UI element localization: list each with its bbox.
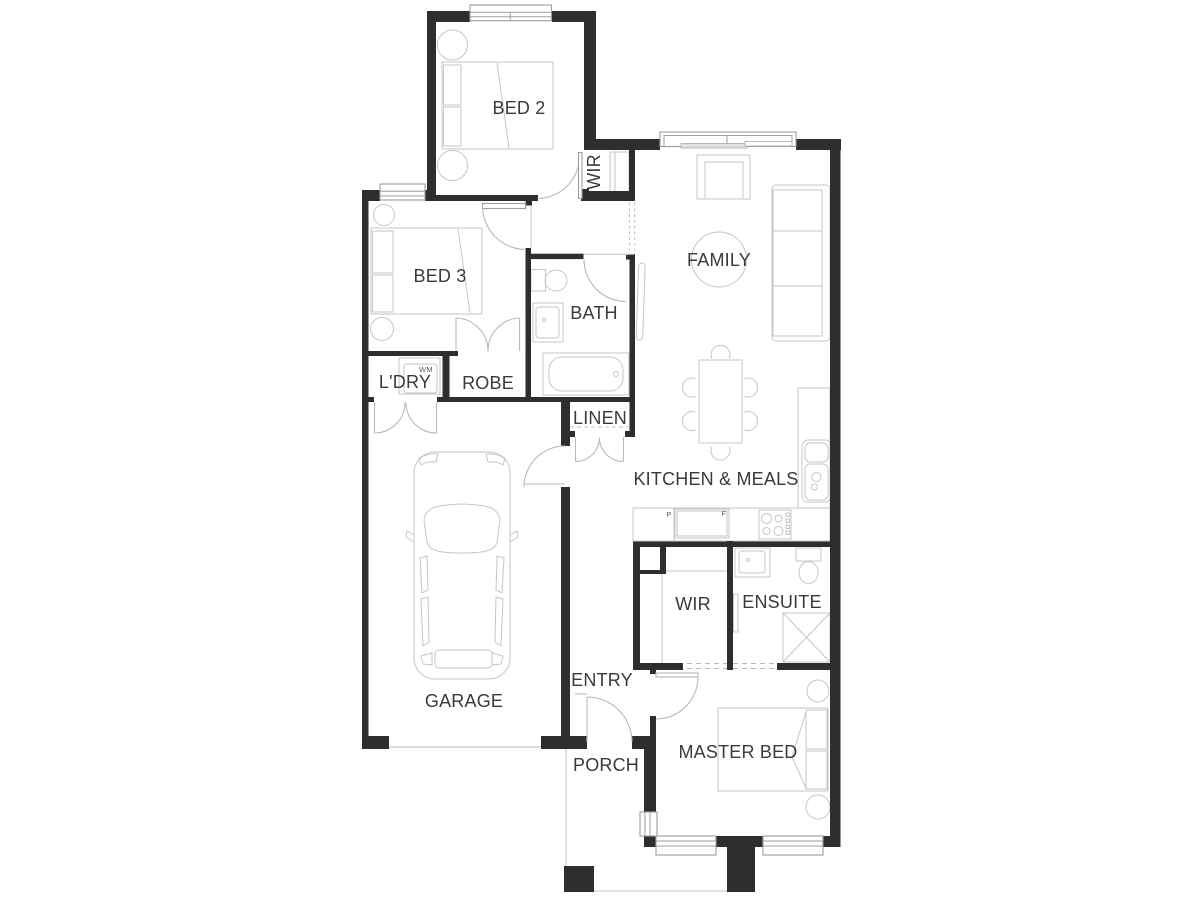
svg-text:PORCH: PORCH — [573, 755, 639, 775]
svg-text:LINEN: LINEN — [573, 408, 627, 428]
svg-text:WIR: WIR — [675, 594, 711, 614]
svg-text:FAMILY: FAMILY — [687, 250, 751, 270]
svg-text:WIR: WIR — [584, 154, 604, 190]
svg-text:BED 2: BED 2 — [492, 98, 545, 118]
svg-text:GARAGE: GARAGE — [425, 691, 503, 711]
svg-text:BED 3: BED 3 — [413, 266, 466, 286]
svg-text:ENTRY: ENTRY — [571, 670, 633, 690]
svg-text:ROBE: ROBE — [462, 373, 514, 393]
svg-text:F: F — [722, 509, 727, 518]
svg-text:P: P — [666, 510, 671, 519]
svg-text:L'DRY: L'DRY — [379, 372, 431, 392]
svg-text:WM: WM — [419, 365, 433, 374]
svg-text:ENSUITE: ENSUITE — [742, 592, 821, 612]
svg-text:MASTER BED: MASTER BED — [678, 742, 797, 762]
svg-text:KITCHEN & MEALS: KITCHEN & MEALS — [633, 469, 798, 489]
svg-text:BATH: BATH — [570, 303, 617, 323]
